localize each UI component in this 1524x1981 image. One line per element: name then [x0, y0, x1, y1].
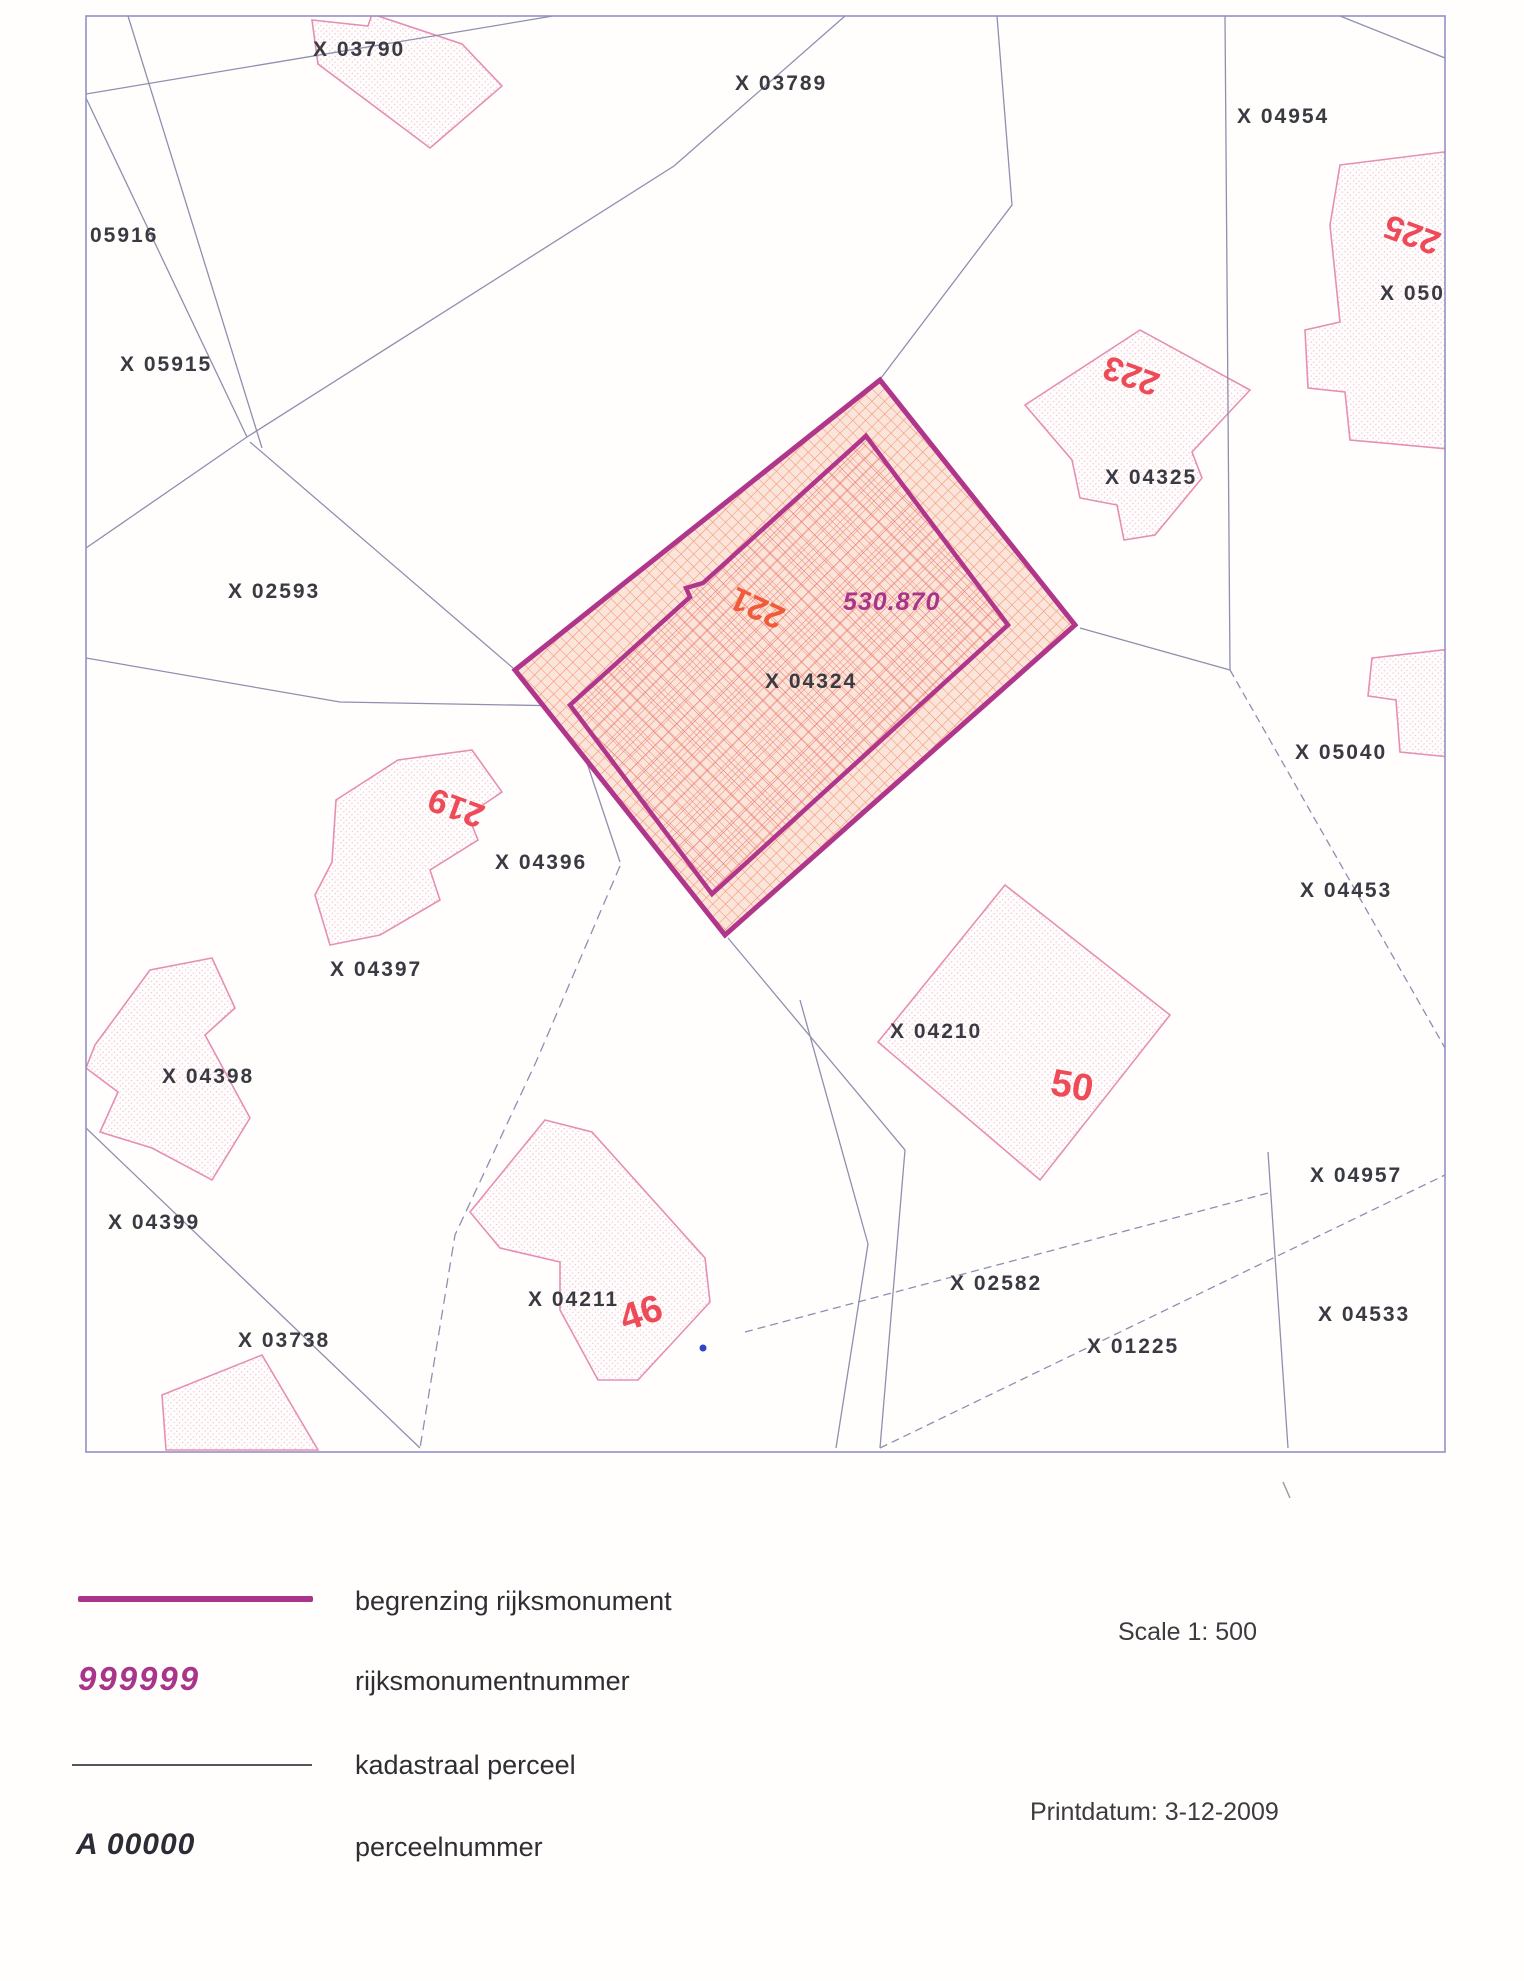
- building-bottom-strip: [162, 1355, 318, 1450]
- parcel-label: X 04210: [890, 1020, 982, 1043]
- parcel-label: X 04396: [495, 851, 587, 874]
- parcel-label: X 04397: [330, 958, 422, 981]
- parcel-label: X 04325: [1105, 466, 1197, 489]
- legend-label: rijksmonumentnummer: [355, 1666, 630, 1697]
- cadastral-parcel-sample-line: [72, 1764, 312, 1766]
- map-scale: Scale 1: 500: [1118, 1618, 1257, 1647]
- map-canvas: 225 223 221 219 50 46 530.870 X 03790 X …: [0, 0, 1524, 1500]
- monument-number-sample: 999999: [78, 1660, 200, 1698]
- house-number: 50: [1048, 1062, 1097, 1111]
- building-219: [315, 750, 502, 945]
- legend-label: begrenzing rijksmonument: [355, 1586, 672, 1617]
- building-x03790: [312, 14, 502, 148]
- legend-label: kadastraal perceel: [355, 1750, 576, 1781]
- parcel-label: X 04957: [1310, 1164, 1402, 1187]
- cadastral-map-page: 225 223 221 219 50 46 530.870 X 03790 X …: [0, 0, 1524, 1981]
- monument-boundary-sample-line: [78, 1596, 313, 1602]
- parcel-label: X 02582: [950, 1272, 1042, 1295]
- parcel-label: X 0501: [1380, 282, 1459, 305]
- parcel-label: X 05915: [120, 353, 212, 376]
- parcel-number-sample: A 00000: [76, 1828, 195, 1862]
- monument-parcel: [515, 380, 1075, 935]
- parcel-label: X 04398: [162, 1065, 254, 1088]
- legend: begrenzing rijksmonument 999999 rijksmon…: [0, 1500, 1524, 1981]
- print-date: Printdatum: 3-12-2009: [1030, 1798, 1279, 1827]
- parcel-label: X 03789: [735, 72, 827, 95]
- parcel-label: X 04399: [108, 1211, 200, 1234]
- parcel-label: X 04954: [1237, 105, 1329, 128]
- parcel-label: X 02593: [228, 580, 320, 603]
- cadastral-map: 225 223 221 219 50 46 530.870 X 03790 X …: [0, 0, 1524, 1500]
- building-46: [470, 1120, 710, 1380]
- parcel-label: X 04324: [765, 670, 857, 693]
- scan-mark: [1283, 1482, 1290, 1498]
- parcel-label: X 03790: [313, 38, 405, 61]
- parcel-label: X 04211: [528, 1288, 619, 1311]
- parcel-label: X 03738: [238, 1329, 330, 1352]
- parcel-label: X 05040: [1295, 741, 1387, 764]
- parcel-label: X 04533: [1318, 1303, 1410, 1326]
- parcel-label: X 01225: [1087, 1335, 1179, 1358]
- parcel-label: 05916: [90, 224, 158, 247]
- rijksmonument-number: 530.870: [843, 588, 940, 616]
- survey-dot: [700, 1345, 707, 1352]
- legend-label: perceelnummer: [355, 1832, 543, 1863]
- parcel-label: X 04453: [1300, 879, 1392, 902]
